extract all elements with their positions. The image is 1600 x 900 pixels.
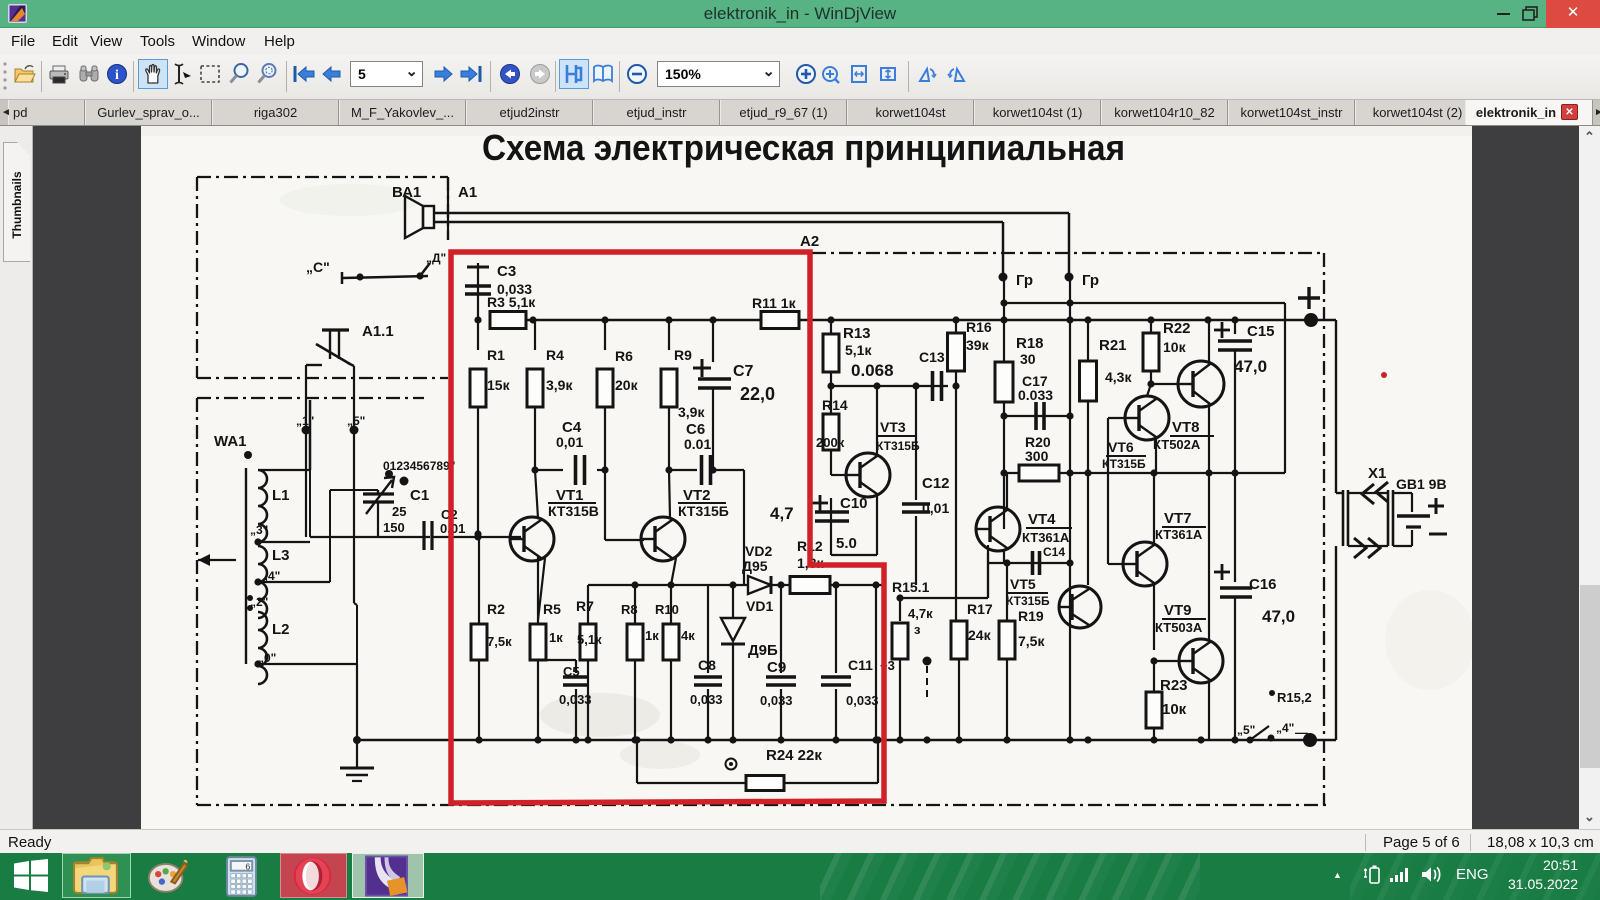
svg-text:R7: R7 — [576, 598, 594, 614]
svg-text:15к: 15к — [487, 377, 511, 393]
svg-text:КТ315Б: КТ315Б — [876, 439, 920, 453]
svg-text:5.0: 5.0 — [836, 535, 857, 552]
svg-text:4,7к: 4,7к — [908, 606, 933, 621]
svg-text:150: 150 — [383, 520, 405, 535]
svg-text:R5: R5 — [543, 601, 561, 617]
svg-text:С16: С16 — [1249, 576, 1277, 593]
svg-text:VT6: VT6 — [1108, 439, 1134, 455]
svg-text:С8: С8 — [698, 657, 716, 673]
svg-text:47,0: 47,0 — [1234, 357, 1267, 376]
svg-text:А1.1: А1.1 — [362, 323, 394, 340]
svg-text:25: 25 — [392, 504, 406, 519]
svg-text:Д95: Д95 — [742, 558, 768, 574]
svg-text:3,9к: 3,9к — [678, 404, 705, 420]
svg-text:VD2: VD2 — [745, 543, 772, 559]
svg-text:R15,2: R15,2 — [1277, 690, 1312, 705]
svg-text:R18: R18 — [1016, 335, 1044, 352]
svg-text:5,1к: 5,1к — [845, 342, 872, 358]
svg-text:С7: С7 — [733, 363, 754, 380]
svg-text:10к: 10к — [1162, 701, 1187, 718]
svg-text:R9: R9 — [674, 347, 692, 363]
svg-text:R6: R6 — [615, 348, 633, 364]
svg-text:С1: С1 — [410, 487, 429, 504]
svg-text:VT5: VT5 — [1010, 576, 1036, 592]
svg-text:22,0: 22,0 — [740, 384, 775, 404]
svg-text:R14: R14 — [822, 397, 848, 413]
svg-text:i: i — [115, 68, 119, 83]
svg-text:А1: А1 — [458, 184, 477, 201]
svg-text:R24 22к: R24 22к — [766, 747, 822, 764]
svg-text:ВА1: ВА1 — [392, 184, 421, 201]
svg-text:VT3: VT3 — [880, 419, 906, 435]
svg-text:0,01: 0,01 — [922, 500, 949, 516]
svg-text:КТ502А: КТ502А — [1153, 437, 1201, 452]
svg-text:30: 30 — [1020, 351, 1036, 367]
svg-text:L2: L2 — [272, 621, 290, 638]
svg-text:47,0: 47,0 — [1262, 607, 1295, 626]
svg-text:R1: R1 — [487, 347, 505, 363]
svg-text:7,5к: 7,5к — [1018, 633, 1045, 649]
svg-text:L3: L3 — [272, 547, 290, 564]
svg-text:С5: С5 — [563, 664, 580, 679]
svg-text:R15.1: R15.1 — [892, 579, 930, 595]
svg-text:С9: С9 — [767, 659, 786, 676]
svg-text:0,033: 0,033 — [846, 693, 879, 708]
svg-text:Д9Б: Д9Б — [748, 642, 778, 659]
svg-text:0.01: 0.01 — [684, 436, 711, 452]
svg-text:7,5к: 7,5к — [487, 634, 512, 649]
svg-text:VT7: VT7 — [1164, 510, 1192, 527]
svg-text:С10: С10 — [840, 495, 868, 512]
svg-text:С3: С3 — [497, 263, 516, 280]
svg-text:4,7: 4,7 — [770, 504, 794, 523]
svg-text:VT4: VT4 — [1028, 511, 1056, 528]
svg-text:„1": „1" — [296, 414, 314, 428]
svg-text:4,3к: 4,3к — [1105, 369, 1132, 385]
svg-text:0.068: 0.068 — [851, 361, 894, 380]
svg-text:0,033: 0,033 — [760, 693, 793, 708]
svg-text:Х1: Х1 — [1368, 465, 1386, 482]
svg-text:R21: R21 — [1099, 337, 1127, 354]
svg-text:С13: С13 — [919, 349, 945, 365]
svg-text:GB1 9В: GB1 9В — [1396, 476, 1447, 492]
svg-text:А2: А2 — [800, 233, 819, 250]
svg-text:„4": „4" — [1276, 721, 1294, 735]
svg-text:R19: R19 — [1018, 608, 1044, 624]
svg-text:Гр: Гр — [1016, 272, 1033, 289]
svg-text:Гр: Гр — [1082, 272, 1099, 289]
svg-text:С11: С11 — [848, 657, 873, 673]
svg-text:39к: 39к — [966, 337, 990, 353]
svg-text:300: 300 — [1025, 448, 1049, 464]
svg-text:КТ315В: КТ315В — [548, 503, 599, 519]
svg-text:1к: 1к — [549, 630, 563, 645]
svg-text:R16: R16 — [966, 319, 992, 335]
svg-text:VT8: VT8 — [1172, 419, 1200, 436]
svg-text:КТ361А: КТ361А — [1155, 527, 1203, 542]
svg-text:R4: R4 — [546, 347, 564, 363]
svg-text:6: 6 — [245, 861, 250, 871]
svg-text:VT2: VT2 — [683, 487, 711, 504]
svg-text:R2: R2 — [487, 601, 505, 617]
svg-text:R17: R17 — [967, 601, 993, 617]
svg-text:„С": „С" — [306, 259, 330, 275]
svg-text:R3 5,1к: R3 5,1к — [487, 294, 536, 310]
svg-text:0,033: 0,033 — [559, 692, 592, 707]
svg-text:0123456789": 0123456789" — [383, 459, 455, 473]
svg-text:КТ315Б: КТ315Б — [1006, 594, 1050, 608]
svg-text:R22: R22 — [1163, 320, 1191, 337]
svg-text:5,1к: 5,1к — [577, 632, 602, 647]
svg-text:10к: 10к — [1163, 339, 1187, 355]
svg-text:4к: 4к — [681, 628, 695, 643]
svg-text:КТ503А: КТ503А — [1155, 620, 1203, 635]
svg-text:24к: 24к — [968, 627, 992, 643]
svg-text:0,01: 0,01 — [556, 434, 583, 450]
svg-text:„Д": „Д" — [426, 251, 446, 265]
svg-text:R23: R23 — [1160, 677, 1188, 694]
svg-text:200к: 200к — [816, 435, 845, 450]
svg-text:КТ361А: КТ361А — [1022, 530, 1070, 545]
svg-text:—: — — [1295, 725, 1308, 740]
svg-text:0,033: 0,033 — [690, 692, 723, 707]
svg-text:С14: С14 — [1043, 545, 1065, 559]
svg-text:0.033: 0.033 — [1018, 387, 1053, 403]
svg-text:WA1: WA1 — [214, 433, 247, 450]
svg-text:L1: L1 — [272, 487, 290, 504]
svg-text:R13: R13 — [843, 325, 871, 342]
svg-text:„5": „5" — [1237, 723, 1255, 737]
svg-text:20к: 20к — [615, 377, 639, 393]
svg-text:3,9к: 3,9к — [546, 377, 573, 393]
svg-text:1к: 1к — [645, 628, 659, 643]
svg-text:R11 1к: R11 1к — [752, 295, 797, 311]
svg-text:VT9: VT9 — [1164, 602, 1192, 619]
svg-text:„3": „3" — [250, 523, 268, 537]
svg-text:КТ315Б: КТ315Б — [678, 503, 729, 519]
svg-text:VT1: VT1 — [556, 487, 584, 504]
svg-text:Схема электрическая принципиал: Схема электрическая принципиальная — [482, 127, 1125, 168]
svg-text:С15: С15 — [1247, 323, 1275, 340]
svg-text:VD1: VD1 — [746, 598, 773, 614]
svg-text:„5": „5" — [347, 414, 365, 428]
svg-text:С12: С12 — [922, 475, 950, 492]
svg-text:R10: R10 — [655, 602, 679, 617]
svg-text:з: з — [914, 622, 921, 637]
